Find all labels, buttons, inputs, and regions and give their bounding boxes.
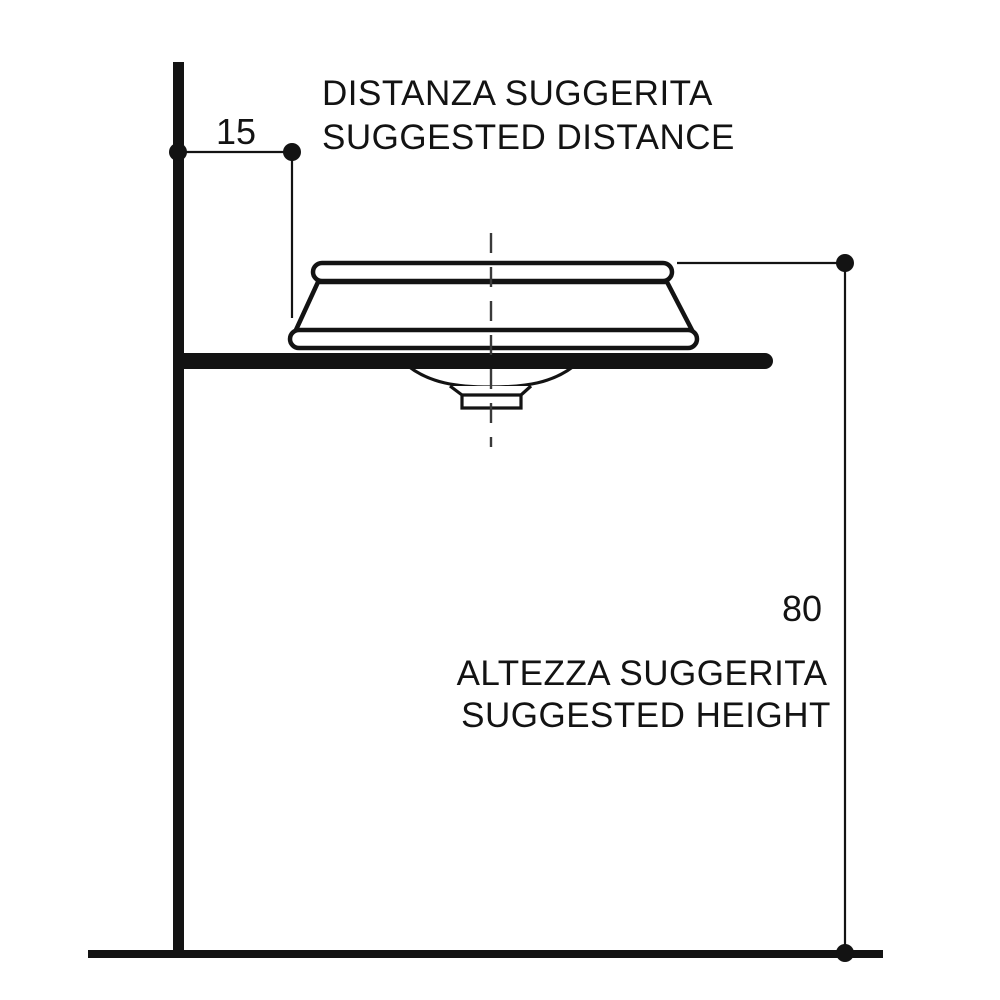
height-caption-italian: ALTEZZA SUGGERITA xyxy=(457,654,828,693)
distance-caption-english: SUGGESTED DISTANCE xyxy=(322,118,735,157)
basin-bottom-rim xyxy=(290,330,697,348)
basin-body xyxy=(295,282,693,332)
distance-wall-anchor-dot xyxy=(169,143,187,161)
floor-line xyxy=(88,950,883,958)
distance-dimension: 15 xyxy=(169,111,301,318)
wall-line xyxy=(173,62,184,958)
distance-offset-anchor-dot xyxy=(283,143,301,161)
basin-top-rim xyxy=(313,263,672,281)
distance-caption-italian: DISTANZA SUGGERITA xyxy=(322,74,713,113)
height-caption: ALTEZZA SUGGERITA SUGGESTED HEIGHT xyxy=(457,654,831,735)
height-top-anchor-dot xyxy=(836,254,854,272)
washbasin-installation-diagram: 15 80 DISTANZA SUGGERITA SUGGESTED DISTA… xyxy=(0,0,1000,1000)
distance-caption: DISTANZA SUGGERITA SUGGESTED DISTANCE xyxy=(322,74,735,157)
distance-value-label: 15 xyxy=(216,111,256,152)
height-value-label: 80 xyxy=(782,588,822,629)
countertop-shelf xyxy=(173,353,773,369)
height-caption-english: SUGGESTED HEIGHT xyxy=(461,696,831,735)
diagram-canvas: 15 80 DISTANZA SUGGERITA SUGGESTED DISTA… xyxy=(0,0,1000,1000)
washbasin xyxy=(290,263,697,408)
height-floor-anchor-dot xyxy=(836,944,854,962)
